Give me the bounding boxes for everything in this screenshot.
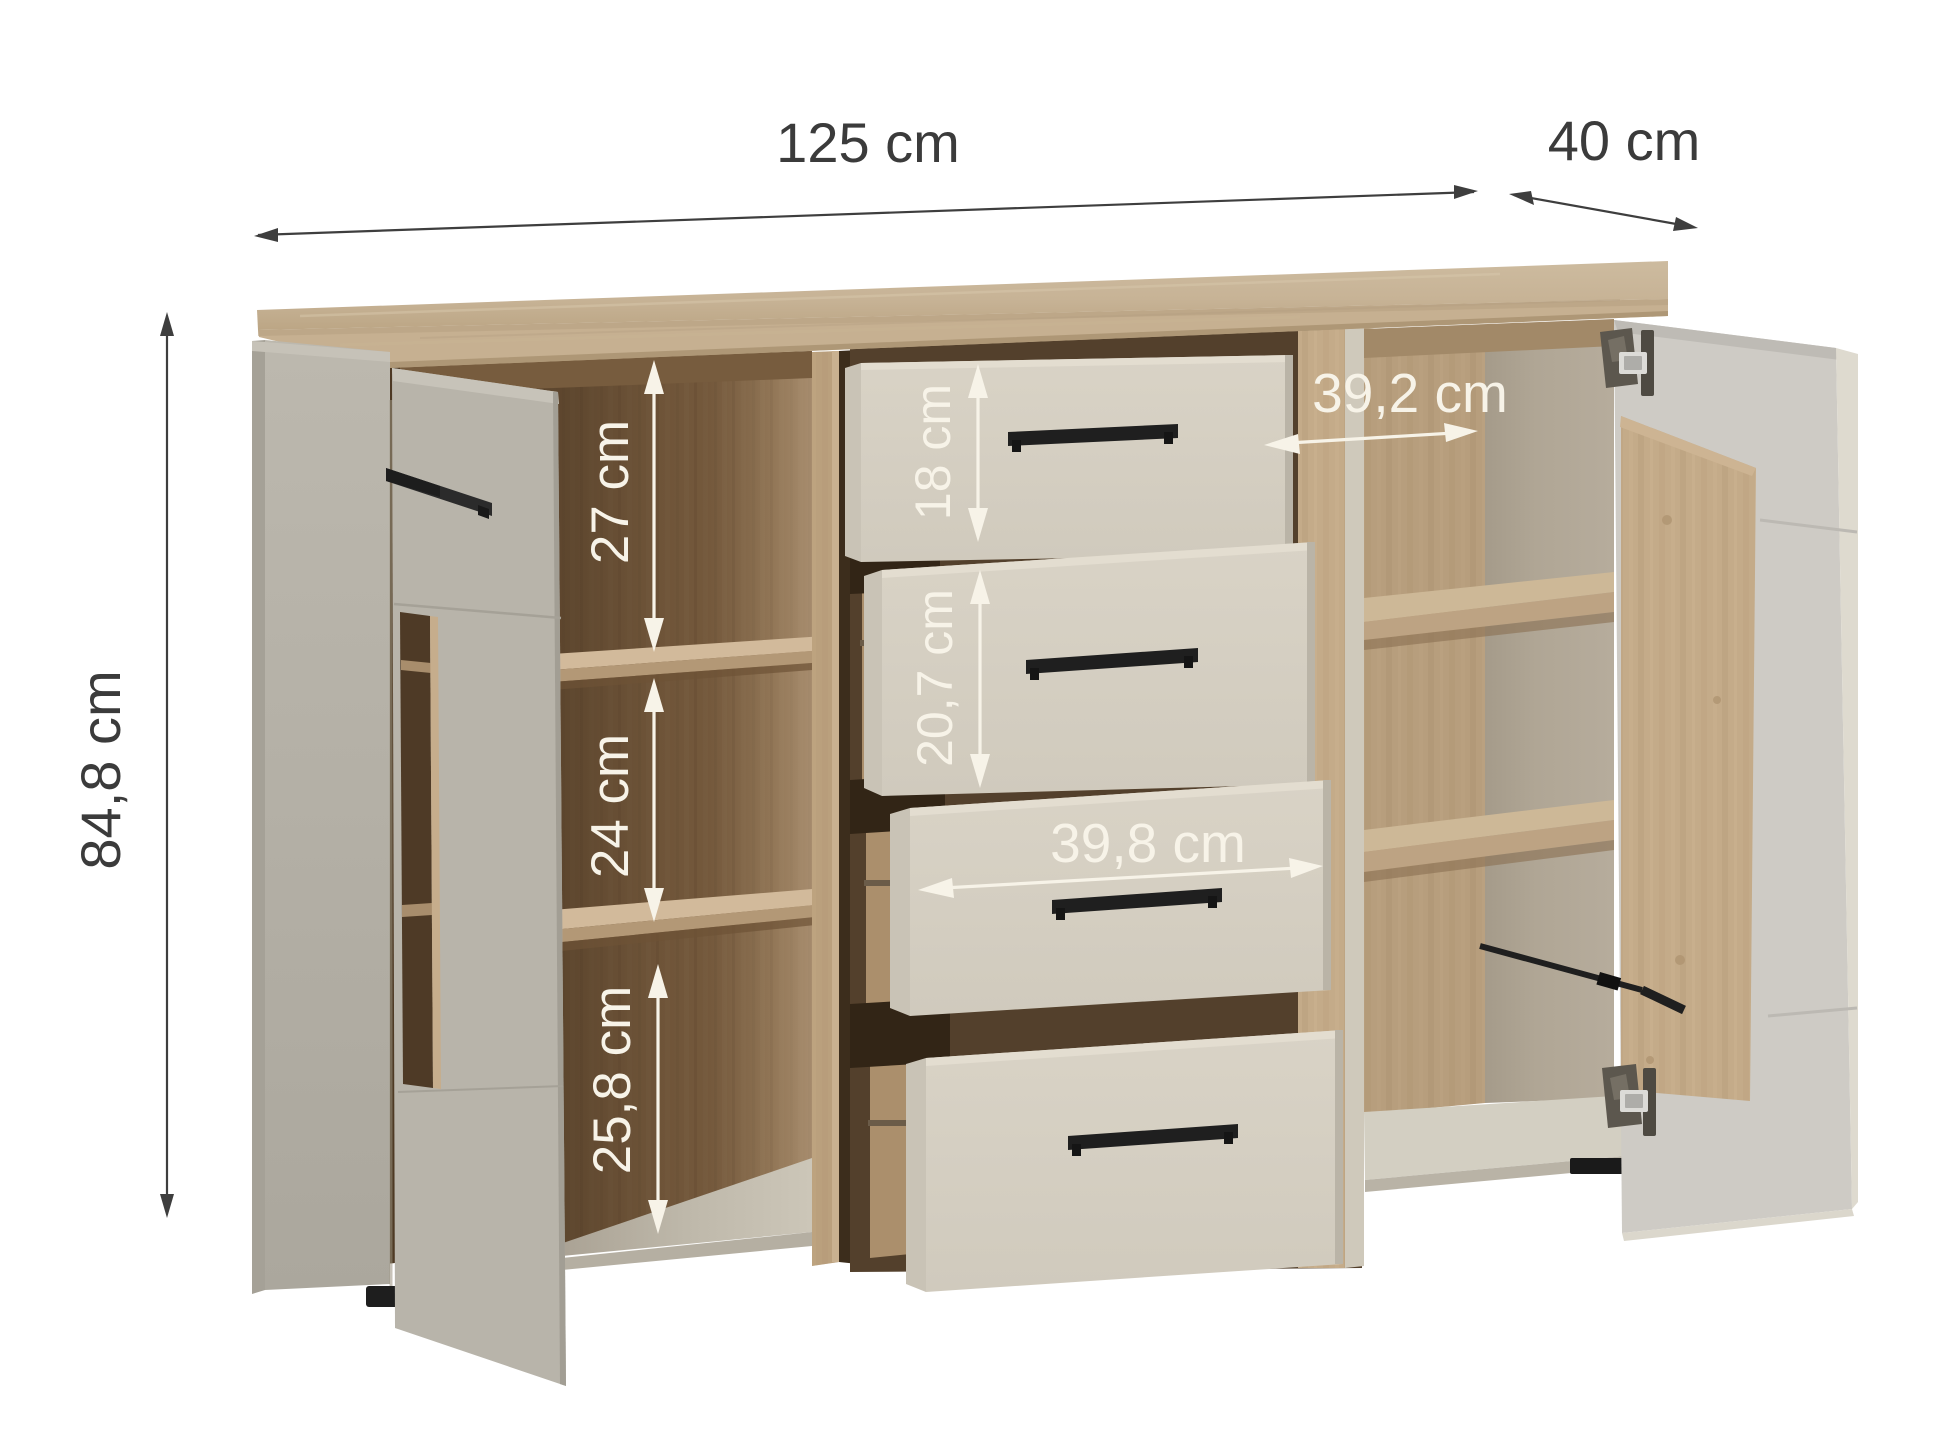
svg-text:84,8 cm: 84,8 cm [69,670,132,869]
svg-text:27 cm: 27 cm [581,420,640,564]
svg-text:40 cm: 40 cm [1548,109,1701,172]
svg-text:125 cm: 125 cm [776,111,960,174]
svg-text:24 cm: 24 cm [581,734,640,878]
svg-text:25,8 cm: 25,8 cm [583,986,642,1175]
svg-text:39,8 cm: 39,8 cm [1050,812,1246,874]
svg-text:20,7 cm: 20,7 cm [907,589,963,767]
svg-text:18 cm: 18 cm [905,384,961,520]
svg-text:39,2 cm: 39,2 cm [1312,362,1508,424]
